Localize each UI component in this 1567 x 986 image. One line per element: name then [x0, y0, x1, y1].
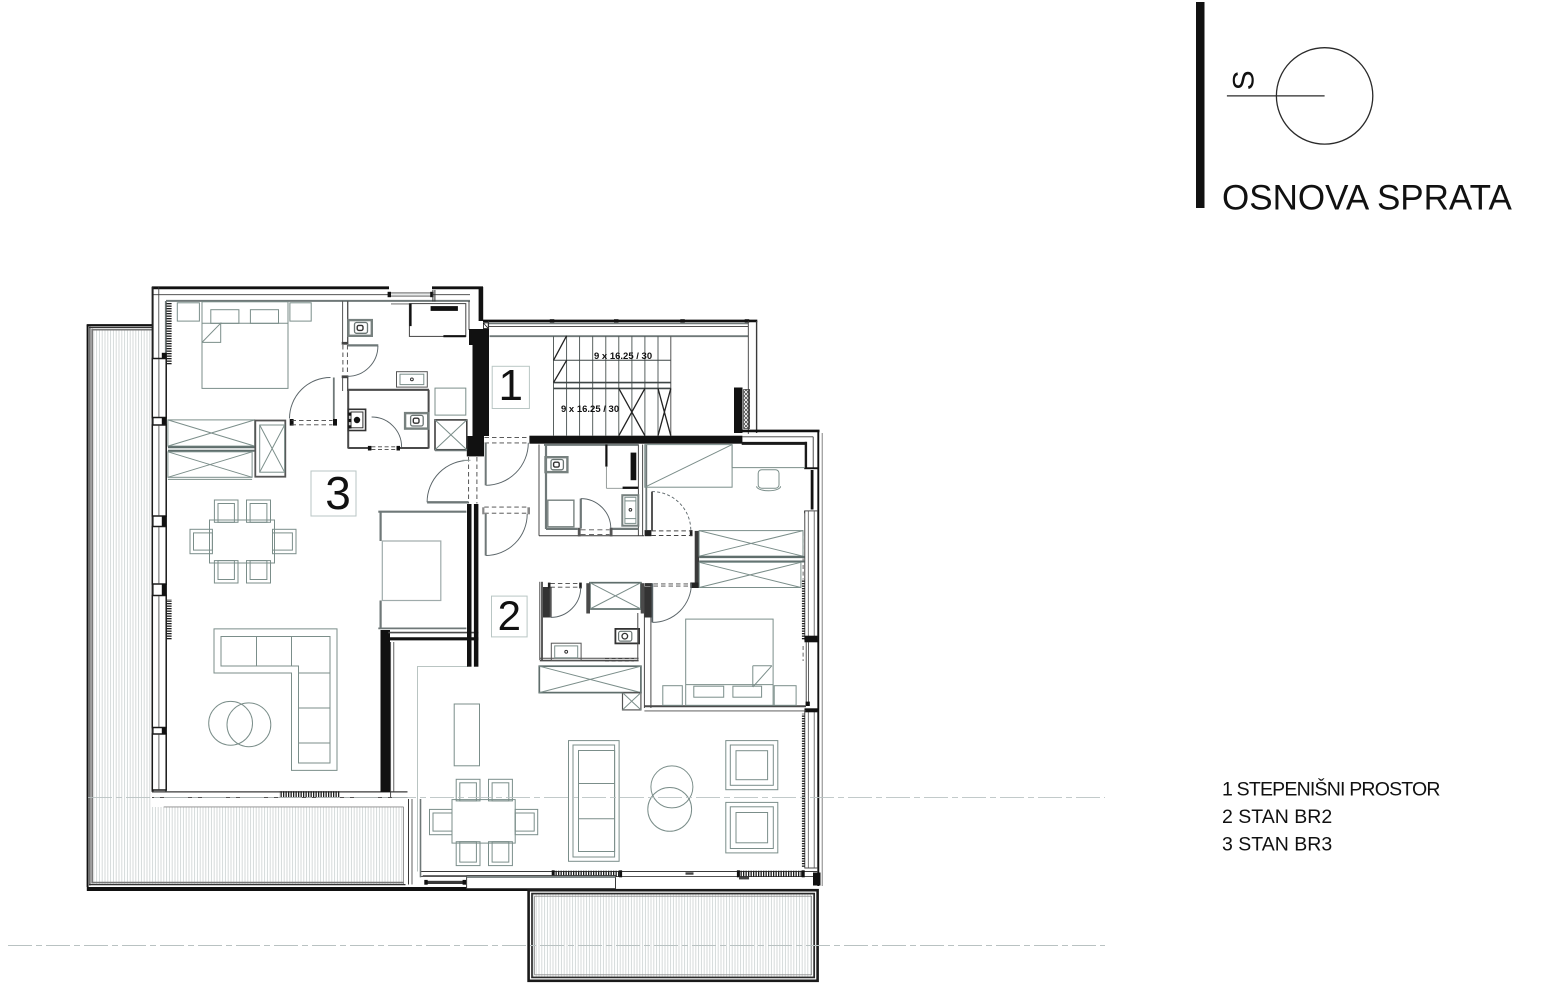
- svg-text:2: 2: [498, 592, 521, 639]
- svg-text:3: 3: [325, 467, 351, 519]
- svg-text:3 STAN BR3: 3 STAN BR3: [1222, 834, 1332, 856]
- svg-text:1: 1: [499, 361, 523, 410]
- svg-text:2 STAN BR2: 2 STAN BR2: [1222, 806, 1332, 828]
- svg-text:S: S: [1228, 70, 1261, 90]
- svg-text:9 x 16.25 / 30: 9 x 16.25 / 30: [594, 351, 652, 362]
- svg-text:1 STEPENIŠNI PROSTOR: 1 STEPENIŠNI PROSTOR: [1222, 778, 1440, 801]
- svg-text:9 x 16.25 / 30: 9 x 16.25 / 30: [561, 404, 619, 415]
- svg-text:OSNOVA SPRATA: OSNOVA SPRATA: [1222, 179, 1512, 218]
